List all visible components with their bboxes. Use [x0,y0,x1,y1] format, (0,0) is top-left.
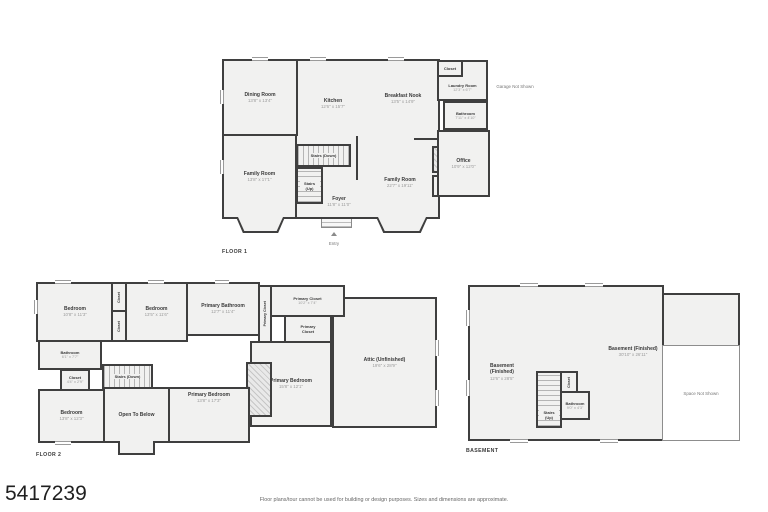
f2-closet-c: Closet 4'4" x 2'9" [60,369,90,391]
f2-primary-closet-small: Primary Closet [284,315,332,343]
room-name: Closet [117,321,121,332]
window [600,439,618,443]
window [435,390,439,406]
f1-family-room-right-label: Family Room 22'7" x 19'11" [375,175,425,191]
f2-bathroom: Bathroom 6'1" x 7'7" [38,340,102,370]
room-dims: 9'0" x 4'3" [567,406,584,411]
window [520,283,538,287]
room-dims: 12'6" x 28'5" [490,376,514,381]
floorplan-page: Dining Room 13'8" x 13'4" Family Room 13… [0,0,768,512]
f1-kitchen-label: Kitchen 12'6" x 15'7" [308,96,358,112]
f2-stairwell-bump [118,441,155,455]
bay-glass [378,217,426,231]
window [466,310,470,326]
f1-garage-note: Garage Not Shown [488,82,542,90]
b-bathroom: Bathroom 9'0" x 4'3" [560,391,590,420]
room-dims: 6'1" x 7'7" [62,355,79,360]
f1-foyer-label: Foyer 11'8" x 11'0" [325,195,353,208]
f1-stairs-up: Stairs (Up) [296,167,323,204]
window [148,280,164,284]
room-dims: 7'11" x 4'10" [455,116,476,121]
f1-bathroom: Bathroom 7'11" x 4'10" [443,101,488,130]
floor1-title: FLOOR 1 [222,249,247,255]
room-name: Primary Closet [263,301,267,326]
f2-stairs-down: Stairs (Down) [102,364,153,389]
f2-primary-bathroom: Primary Bathroom 12'7" x 11'4" [186,282,260,336]
window [55,280,71,284]
b-topright-area [662,293,740,347]
room-name: Closet [567,377,571,388]
space-note-text: Space Not Shown [683,391,718,396]
garage-note-text: Garage Not Shown [496,84,533,89]
f1-stairs-down: Stairs (Down) [296,144,351,167]
room-name: Stairs (Down) [114,374,142,379]
room-dims: 10'2" x 7'4" [298,301,317,306]
window [388,57,404,61]
basement-title: BASEMENT [466,448,498,454]
b-main-label: Basement (Finished) 30'10" x 26'11" [606,344,660,360]
room-name: Closet [117,292,121,303]
f1-wall-stub [356,136,358,180]
f2-bedroom-2: Bedroom 13'5" x 11'6" [125,282,188,342]
window [55,441,71,445]
room-name: Open To Below [118,412,154,418]
room-name: Stairs (Down) [310,153,338,158]
f2-primary-closet-big: Primary Closet 10'2" x 7'4" [270,285,345,317]
f1-breakfast-nook-label: Breakfast Nook 13'5" x 14'9" [378,91,428,107]
f1-office: Office 10'9" x 12'0" [437,130,490,197]
floor2-title: FLOOR 2 [36,452,61,458]
room-name: Basement (Finished) [478,363,526,376]
room-dims: 10'9" x 12'0" [451,164,475,169]
room-dims: 10'8" x 11'3" [63,312,87,317]
f2-open-to-below: Open To Below [103,387,170,443]
f1-closet-top: Closet [437,60,463,77]
window [585,283,603,287]
f2-primary-bedroom: Primary Bedroom 13'8" x 17'3" [168,387,250,443]
room-dims: 12'6" x 15'7" [321,104,345,109]
room-dims: 13'5" x 14'9" [391,99,415,104]
room-dims: 13'8" x 13'4" [248,98,272,103]
entry-arrow-icon [331,232,337,236]
window [215,280,229,284]
room-dims: 11'8" x 11'0" [327,202,350,207]
room-name: Primary Closet [295,324,321,334]
b-closet: Closet [560,371,578,393]
disclaimer-text: Floor plans/tour cannot be used for buil… [0,497,768,503]
room-dims: 22'7" x 19'11" [387,183,413,188]
window [466,380,470,396]
room-name: Closet [444,66,456,71]
room-dims: 12'7" x 11'4" [211,309,235,314]
f1-entry-steps [321,219,352,228]
f1-bay-window-left [236,217,285,233]
f1-dining-room: Dining Room 13'8" x 13'4" [222,59,298,136]
window [435,340,439,356]
b-left-label: Basement (Finished) 12'6" x 28'5" [478,364,526,380]
room-dims: 13'5" x 11'6" [145,312,169,317]
room-dims: 15'8" x 12'1" [279,384,303,389]
room-dims: 13'8" x 17'3" [197,398,221,403]
room-name: Stairs (Up) [539,410,559,420]
window [310,57,326,61]
f1-family-room-left: Family Room 13'8" x 17'1" [222,134,297,219]
f2-bedroom-3: Bedroom 13'8" x 12'3" [38,389,105,443]
b-space-not-shown: Space Not Shown [662,345,740,441]
window [220,90,224,104]
room-dims: 4'4" x 2'9" [67,380,84,385]
room-dims: 13'8" x 17'1" [247,177,271,182]
f2-bedroom-1: Bedroom 10'8" x 11'3" [36,282,114,342]
f1-bay-window-right [376,217,428,233]
bay-glass [238,217,283,231]
window [220,160,224,174]
window [510,439,528,443]
f1-entry-label: Entry [320,239,348,247]
f2-attic: Attic (Unfinished) 19'6" x 28'9" [332,297,437,428]
entry-text: Entry [329,241,339,246]
window [252,57,268,61]
window [34,300,38,314]
room-dims: 13'8" x 12'3" [59,416,83,421]
room-dims: 12'3" x 6'7" [453,88,472,93]
room-dims: 19'6" x 28'9" [372,363,396,368]
b-stairs-up: Stairs (Up) [536,371,562,428]
room-name: Stairs (Up) [300,181,320,191]
room-dims: 30'10" x 26'11" [619,352,648,357]
